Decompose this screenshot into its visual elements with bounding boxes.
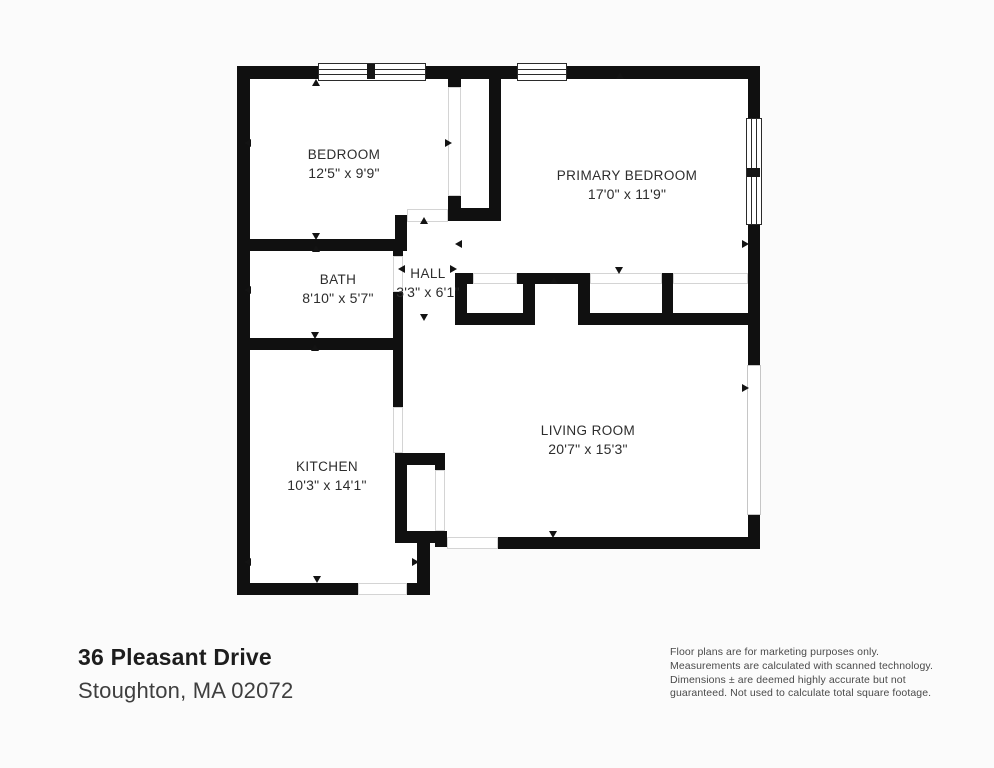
floor-plan-page: BEDROOM 12'5" x 9'9" PRIMARY BEDROOM 17'… [0, 0, 994, 768]
room-label-kitchen: KITCHEN 10'3" x 14'1" [287, 459, 366, 493]
address-line1: 36 Pleasant Drive [78, 644, 293, 671]
wall-hall-top-stub [448, 196, 461, 221]
measure-tick [615, 267, 623, 274]
room-name: HALL [396, 266, 459, 281]
measure-tick [742, 384, 749, 392]
room-dimensions: 3'3" x 6'1" [396, 284, 459, 300]
address-line2: Stoughton, MA 02072 [78, 678, 293, 704]
measure-tick [312, 79, 320, 86]
wall-kitchen-jog [417, 542, 430, 595]
measure-tick [420, 217, 428, 224]
wall-primary-left [489, 66, 501, 221]
room-name: LIVING ROOM [541, 423, 635, 438]
measure-tick [412, 558, 419, 566]
window-living-right-slider [747, 365, 761, 515]
window-primary-top [517, 63, 567, 81]
wall-pantry-top-cap [435, 453, 445, 470]
room-name: BATH [302, 272, 373, 287]
window-primary-right [746, 118, 762, 225]
wall-pantry-bottom-cap [435, 531, 447, 547]
measure-tick [312, 245, 320, 252]
wall-right-top [748, 66, 760, 118]
wall-right-mid [748, 225, 760, 365]
measure-tick [311, 332, 319, 339]
room-dimensions: 12'5" x 9'9" [308, 165, 381, 181]
property-address: 36 Pleasant Drive Stoughton, MA 02072 [78, 644, 293, 704]
measure-tick [313, 576, 321, 583]
opening-closet3-door [673, 273, 748, 284]
disclaimer-line: Dimensions ± are deemed highly accurate … [670, 674, 933, 688]
measure-tick [616, 72, 624, 79]
room-label-primary-bedroom: PRIMARY BEDROOM 17'0" x 11'9" [557, 168, 698, 202]
room-dimensions: 8'10" x 5'7" [302, 290, 373, 306]
room-name: PRIMARY BEDROOM [557, 168, 698, 183]
opening-pantry-door [435, 470, 445, 531]
wall-kitchen-bottom [237, 583, 358, 595]
disclaimer-line: Measurements are calculated with scanned… [670, 660, 933, 674]
wall-bath-bottom [237, 338, 403, 350]
window-mullion [747, 168, 760, 177]
measure-tick [311, 344, 319, 351]
wall-living-bottom [498, 537, 760, 549]
room-label-bedroom: BEDROOM 12'5" x 9'9" [308, 147, 381, 181]
measure-tick [244, 286, 251, 294]
measure-tick [445, 139, 452, 147]
room-label-hall: HALL 3'3" x 6'1" [396, 266, 459, 300]
room-dimensions: 10'3" x 14'1" [287, 477, 366, 493]
measure-tick [312, 233, 320, 240]
wall-kitchen-right [393, 338, 403, 407]
room-dimensions: 17'0" x 11'9" [557, 186, 698, 202]
room-name: KITCHEN [287, 459, 366, 474]
disclaimer-line: Floor plans are for marketing purposes o… [670, 646, 933, 660]
measure-tick [549, 531, 557, 538]
window-bedroom-top [318, 63, 426, 81]
wall-bath-right-upper [393, 239, 403, 256]
disclaimer-text: Floor plans are for marketing purposes o… [670, 646, 933, 701]
measure-tick [420, 314, 428, 321]
opening-kitchen-rear-door [358, 583, 407, 595]
wall-pantry-left [395, 453, 407, 543]
room-dimensions: 20'7" x 15'3" [541, 441, 635, 457]
disclaimer-line: guaranteed. Not used to calculate total … [670, 687, 933, 701]
measure-tick [244, 558, 251, 566]
measure-tick [244, 139, 251, 147]
window-glass [518, 69, 566, 75]
wall-closet-divider [662, 273, 673, 325]
opening-closet2-door [590, 273, 662, 284]
room-label-bath: BATH 8'10" x 5'7" [302, 272, 373, 306]
opening-kitchen-door [393, 407, 403, 453]
opening-entry-door [447, 537, 498, 549]
opening-closet1-door [473, 273, 517, 284]
room-label-living-room: LIVING ROOM 20'7" x 15'3" [541, 423, 635, 457]
room-name: BEDROOM [308, 147, 381, 162]
window-mullion [367, 64, 375, 79]
measure-tick [455, 240, 462, 248]
measure-tick [742, 240, 749, 248]
measure-tick [550, 277, 558, 284]
